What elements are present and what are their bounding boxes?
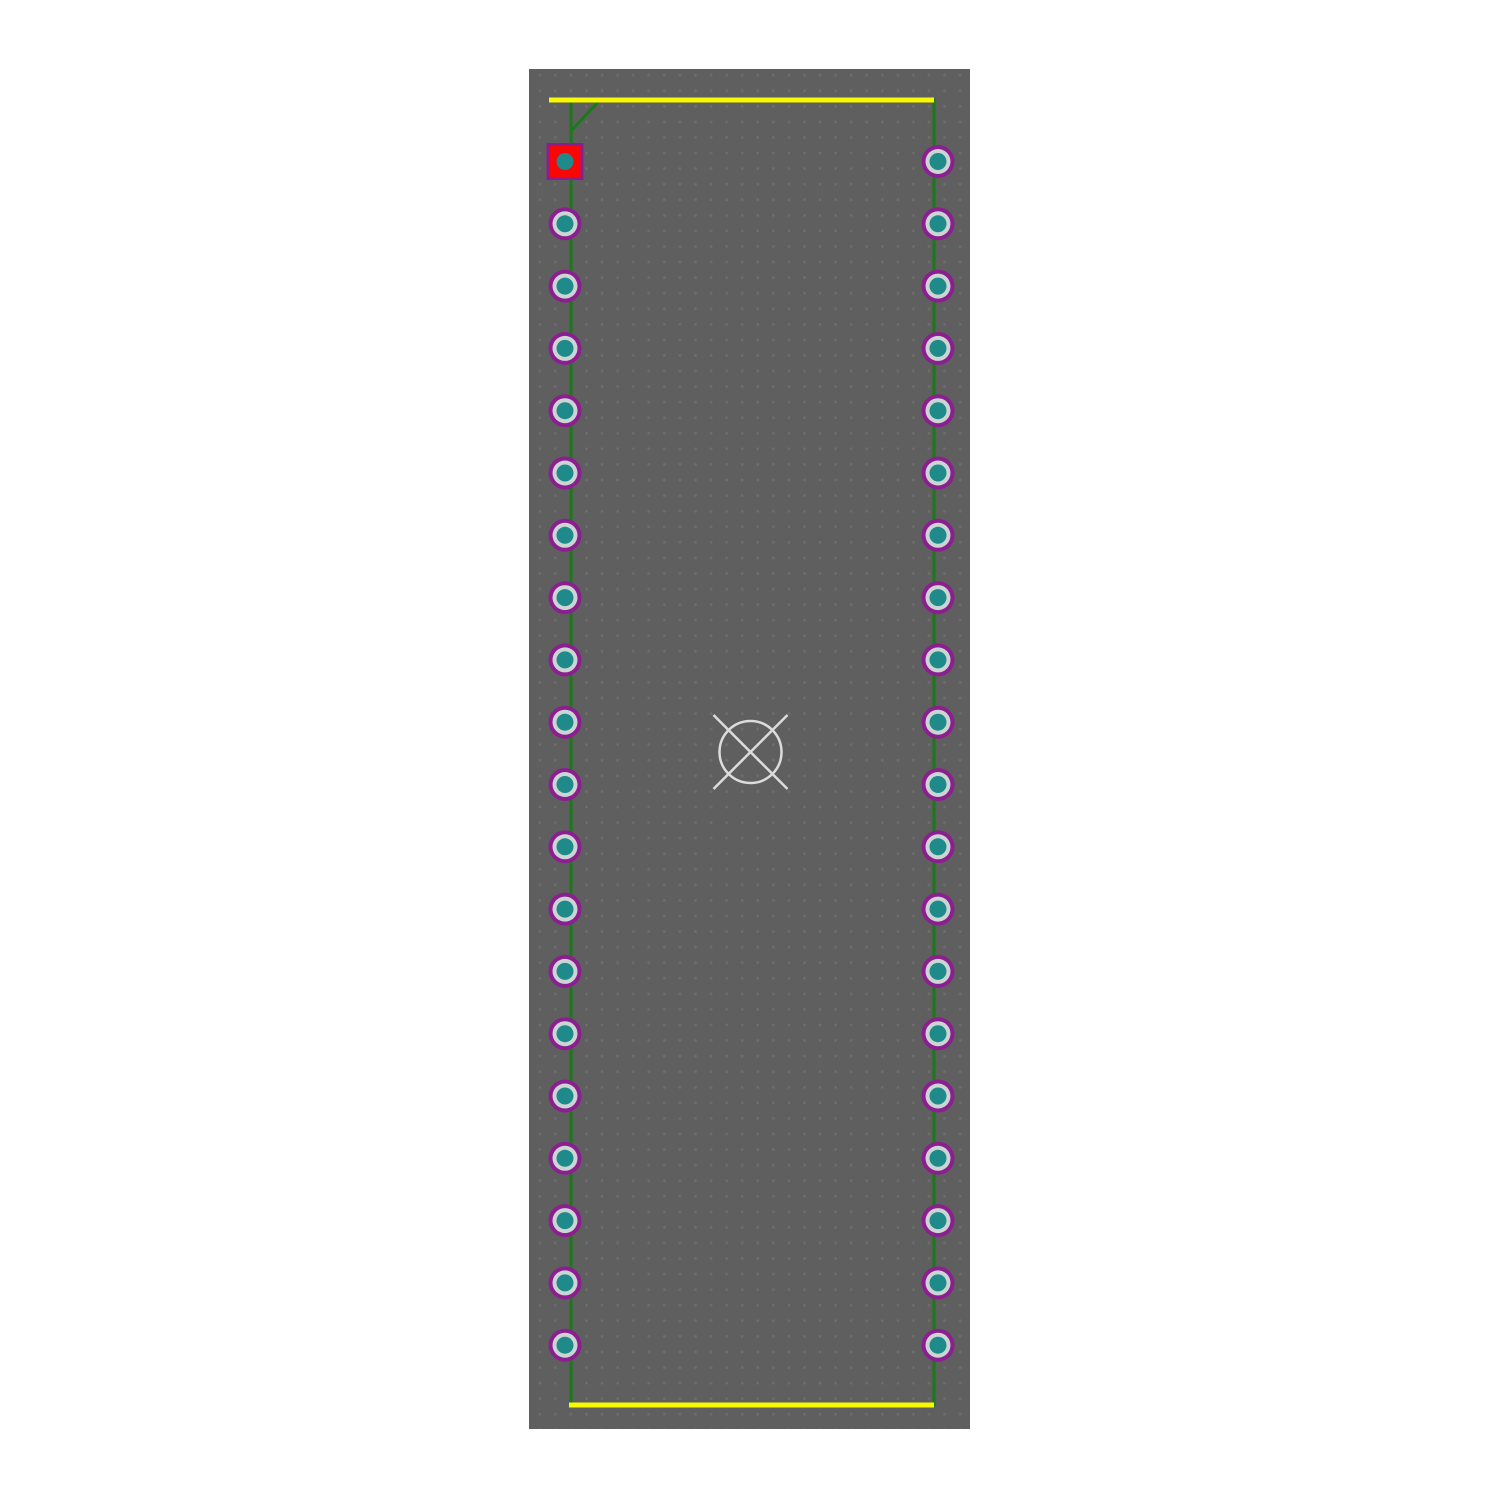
- pad-right-11[interactable]: [922, 768, 955, 801]
- pad-drill-hole: [930, 1088, 947, 1105]
- pad-drill-hole: [930, 1212, 947, 1229]
- pad-right-5[interactable]: [922, 394, 955, 427]
- pad-drill-hole: [930, 340, 947, 357]
- pad-left-7[interactable]: [549, 519, 582, 552]
- pad-right-7[interactable]: [922, 519, 955, 552]
- pad-drill-hole: [930, 1025, 947, 1042]
- pad-left-2[interactable]: [549, 207, 582, 240]
- pad-right-1[interactable]: [922, 145, 955, 178]
- pad-drill-hole: [557, 838, 574, 855]
- board-grid-dots: [529, 69, 970, 1429]
- pad-drill-hole: [930, 1337, 947, 1354]
- pad-right-19[interactable]: [922, 1266, 955, 1299]
- pad-drill-hole: [557, 1025, 574, 1042]
- pad-drill-hole: [930, 1274, 947, 1291]
- pad-drill-hole: [930, 901, 947, 918]
- pad-right-4[interactable]: [922, 332, 955, 365]
- pad-drill-hole: [930, 651, 947, 668]
- pad-right-6[interactable]: [922, 457, 955, 490]
- pad-left-14[interactable]: [549, 955, 582, 988]
- pad-drill-hole: [557, 1274, 574, 1291]
- pad-drill-hole: [930, 589, 947, 606]
- pad-drill-hole: [557, 901, 574, 918]
- pad-left-4[interactable]: [549, 332, 582, 365]
- pad-drill-hole: [557, 1088, 574, 1105]
- pad-left-10[interactable]: [549, 706, 582, 739]
- pad-drill-hole: [930, 153, 947, 170]
- pad-drill-hole: [557, 776, 574, 793]
- pad-left-19[interactable]: [549, 1266, 582, 1299]
- pad-right-13[interactable]: [922, 893, 955, 926]
- pad-right-12[interactable]: [922, 830, 955, 863]
- pad-drill-hole: [930, 714, 947, 731]
- pad-right-8[interactable]: [922, 581, 955, 614]
- pad-left-11[interactable]: [549, 768, 582, 801]
- pad-left-17[interactable]: [549, 1142, 582, 1175]
- pad-right-18[interactable]: [922, 1204, 955, 1237]
- pad-drill-hole: [930, 838, 947, 855]
- pad-left-6[interactable]: [549, 457, 582, 490]
- pad-drill-hole: [930, 278, 947, 295]
- pad-right-15[interactable]: [922, 1017, 955, 1050]
- pad-drill-hole: [930, 465, 947, 482]
- pad-right-17[interactable]: [922, 1142, 955, 1175]
- pad-drill-hole: [557, 714, 574, 731]
- pad-right-9[interactable]: [922, 643, 955, 676]
- pcb-footprint-canvas: [0, 0, 1500, 1500]
- pad-right-16[interactable]: [922, 1080, 955, 1113]
- pad-drill-hole: [930, 1150, 947, 1167]
- pad-left-18[interactable]: [549, 1204, 582, 1237]
- pad-drill-hole: [930, 402, 947, 419]
- pad-drill-hole: [557, 1337, 574, 1354]
- pad-right-2[interactable]: [922, 207, 955, 240]
- pad-left-16[interactable]: [549, 1080, 582, 1113]
- pad-right-10[interactable]: [922, 706, 955, 739]
- pad-left-12[interactable]: [549, 830, 582, 863]
- pad-left-9[interactable]: [549, 643, 582, 676]
- pad-drill-hole: [557, 402, 574, 419]
- pad-left-3[interactable]: [549, 270, 582, 303]
- pad-1-selected[interactable]: [548, 145, 582, 179]
- pad-drill-hole: [557, 278, 574, 295]
- footprint-editor-viewport: [0, 0, 1500, 1500]
- pad-drill-hole: [557, 215, 574, 232]
- pad-right-14[interactable]: [922, 955, 955, 988]
- pad-drill-hole: [557, 340, 574, 357]
- pad-drill-hole: [557, 465, 574, 482]
- pad-left-5[interactable]: [549, 394, 582, 427]
- pad-drill-hole: [557, 963, 574, 980]
- pad-left-15[interactable]: [549, 1017, 582, 1050]
- pad-drill-hole: [930, 215, 947, 232]
- pad-right-20[interactable]: [922, 1329, 955, 1362]
- pad-left-8[interactable]: [549, 581, 582, 614]
- pad-drill-hole: [930, 963, 947, 980]
- pad-drill-hole: [557, 651, 574, 668]
- pad-left-20[interactable]: [549, 1329, 582, 1362]
- pad-right-3[interactable]: [922, 270, 955, 303]
- pad-drill-hole: [557, 589, 574, 606]
- pad-left-13[interactable]: [549, 893, 582, 926]
- pad-drill-hole: [557, 1212, 574, 1229]
- pad-drill-hole: [557, 527, 574, 544]
- pad-drill-hole: [557, 1150, 574, 1167]
- pad-drill-hole: [930, 776, 947, 793]
- pad-1-drill-hole: [557, 153, 574, 170]
- pad-drill-hole: [930, 527, 947, 544]
